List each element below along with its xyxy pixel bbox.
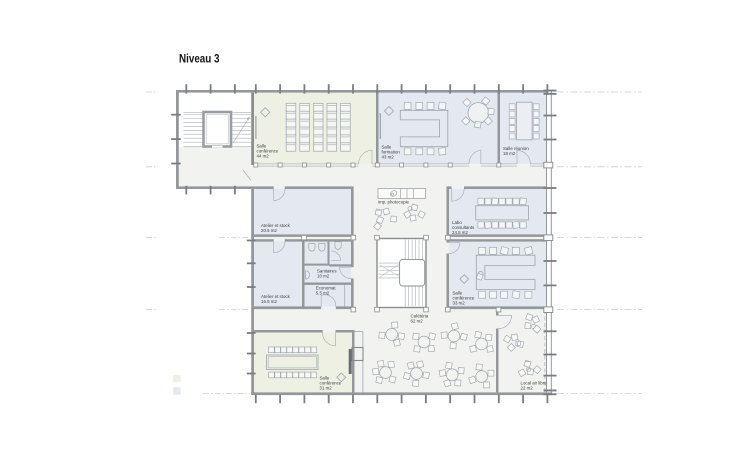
svg-text:24.5 m2: 24.5 m2 [452,230,468,235]
svg-text:33 m2: 33 m2 [453,301,466,306]
svg-text:16.5 m2: 16.5 m2 [261,299,277,304]
svg-text:20.5 m2: 20.5 m2 [261,228,277,233]
svg-text:62 m2: 62 m2 [411,318,424,323]
svg-text:Niveau 3: Niveau 3 [179,51,220,65]
svg-text:43 m2: 43 m2 [382,155,395,160]
svg-text:22 m2: 22 m2 [521,385,534,390]
svg-text:31 m2: 31 m2 [320,386,333,391]
svg-text:imp. photocopie: imp. photocopie [378,199,410,204]
svg-text:18 m2: 18 m2 [503,151,516,156]
svg-text:44 m2: 44 m2 [257,154,270,159]
svg-text:5.5 m2: 5.5 m2 [316,290,330,295]
svg-text:10 m2: 10 m2 [317,273,330,278]
